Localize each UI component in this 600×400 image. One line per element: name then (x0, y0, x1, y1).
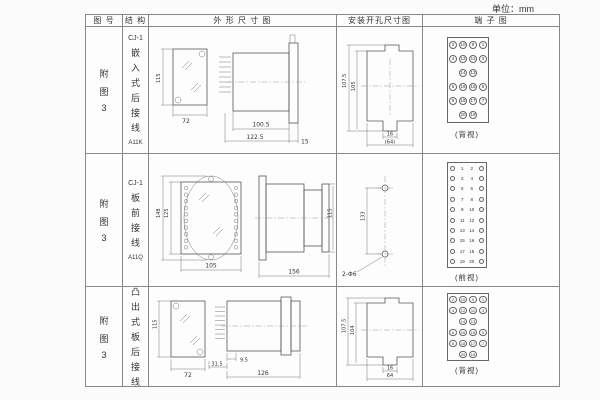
dim-label: (64) (385, 140, 395, 146)
terminal-blank (448, 349, 458, 360)
terminal-hole (479, 176, 484, 181)
row1-mount-drawing: 107.5 105 16 (64) (337, 27, 423, 154)
terminal-number: 10 (469, 207, 474, 212)
terminal-circle: 4 (448, 52, 458, 66)
terminal-number: 19 (460, 259, 465, 264)
terminal-number: 18 (459, 340, 467, 348)
terminal-hole (479, 207, 484, 212)
terminal-hole (450, 197, 455, 202)
terminal-panel-front-view: 1234567891011121314151617181920 (447, 162, 487, 268)
terminal-hole (450, 249, 455, 254)
terminal-number: 7 (479, 97, 487, 105)
terminal-circle: 7 (478, 338, 488, 349)
terminal-circle: 12 (458, 52, 468, 66)
terminal-circle: 18 (458, 338, 468, 349)
terminal-number: 3 (479, 307, 487, 315)
terminal-number: 20 (469, 259, 474, 264)
terminal-number: 17 (469, 97, 477, 105)
terminal-hole (479, 238, 484, 243)
terminal-number: 4 (470, 176, 473, 181)
terminal-circle: 18 (458, 94, 468, 108)
terminal-blank (478, 108, 488, 122)
terminal-blank (478, 66, 488, 80)
dim-label: 107.5 (342, 319, 348, 333)
terminal-number: 2 (449, 41, 457, 49)
row2-structure: CJ-1 板 前 接 线 A11Q (123, 154, 149, 287)
structure-char: 接 (131, 106, 140, 119)
terminal-number: 20 (459, 351, 467, 359)
terminal-number: 8 (449, 97, 457, 105)
terminal-number: 12 (459, 55, 467, 63)
terminal-number: 3 (461, 176, 464, 181)
structure-char: 式 (131, 76, 140, 89)
dim-label: 156 (288, 269, 300, 276)
terminal-hole (479, 197, 484, 202)
terminal-number: 19 (469, 351, 477, 359)
header-structure: 结 构 (123, 15, 149, 27)
structure-char: 嵌 (131, 46, 140, 59)
dim-label: 115 (156, 73, 162, 83)
terminal-number: 15 (469, 329, 477, 337)
fig-char: 图 (99, 332, 108, 345)
terminal-circle: 2 (448, 294, 458, 305)
header-fig-no: 图 号 (86, 15, 123, 27)
structure-code: A11Q (128, 255, 143, 261)
terminal-caption: (背视) (427, 129, 507, 140)
terminal-number: 6 (449, 329, 457, 337)
dim-label: 9.5 (240, 358, 248, 364)
terminal-circle: 8 (448, 94, 458, 108)
dim-label: 72 (184, 372, 192, 379)
header-outline-dims: 外 形 尺 寸 图 (149, 15, 337, 27)
terminal-number: 13 (469, 318, 477, 326)
terminal-hole (450, 259, 455, 264)
terminal-circle: 12 (458, 305, 468, 316)
terminal-circle: 8 (448, 338, 458, 349)
fig-char: 附 (99, 197, 108, 210)
dim-label: 125 (164, 208, 170, 218)
terminal-number: 17 (469, 340, 477, 348)
terminal-number: 12 (459, 307, 467, 315)
terminal-circle: 17 (468, 94, 478, 108)
terminal-circle: 6 (448, 327, 458, 338)
terminal-number: 2 (449, 296, 457, 304)
structure-char: 线 (131, 375, 140, 387)
terminal-circle: 15 (468, 80, 478, 94)
dim-label: 107.5 (342, 74, 348, 88)
terminal-circle: 9 (468, 38, 478, 52)
terminal-number: 1 (479, 41, 487, 49)
row3-mount-cell: 107.5 104 16 64 (337, 287, 423, 386)
terminal-blank (448, 66, 458, 80)
terminal-circle: 7 (478, 94, 488, 108)
structure-model: CJ-1 (128, 180, 143, 187)
terminal-hole (450, 218, 455, 223)
hole-spec-label: 2-Φ6 (342, 271, 357, 278)
row2-fig-no: 附 图 3 (86, 154, 123, 287)
dim-label: 115 (328, 208, 334, 218)
terminal-circle: 11 (468, 305, 478, 316)
terminal-circle: 16 (458, 80, 468, 94)
terminal-number: 11 (469, 55, 477, 63)
terminal-number: 15 (460, 238, 465, 243)
terminal-circle: 19 (468, 108, 478, 122)
terminal-circle: 15 (468, 327, 478, 338)
terminal-hole (479, 259, 484, 264)
row1-terminal-cell: 2109141211314136161558181772019 (背视) (423, 27, 559, 154)
terminal-number: 4 (449, 307, 457, 315)
terminal-number: 10 (459, 41, 467, 49)
terminal-hole (479, 166, 484, 171)
terminal-number: 12 (469, 218, 474, 223)
dim-label: 16 (387, 366, 393, 372)
dim-label: 148 (156, 208, 162, 218)
header-terminal-diagram: 端 子 图 (423, 15, 559, 27)
fig-char: 图 (99, 215, 108, 228)
dim-label: 104 (350, 325, 356, 335)
terminal-circle: 10 (458, 38, 468, 52)
terminal-number: 7 (461, 197, 464, 202)
terminal-blank (478, 349, 488, 360)
terminal-hole (479, 228, 484, 233)
terminal-circle: 14 (458, 66, 468, 80)
dim-label: 15 (301, 139, 309, 146)
row1-fig-no: 附 图 3 (86, 27, 123, 154)
terminal-number: 13 (469, 69, 477, 77)
structure-char: 出 (131, 300, 140, 313)
terminal-panel-back-view: 2109141211314136161558181772019 (447, 37, 489, 123)
dim-label: 105 (351, 81, 357, 91)
terminal-number: 4 (449, 55, 457, 63)
terminal-blank (448, 316, 458, 327)
dim-label: 122.5 (246, 134, 263, 141)
terminal-circle: 11 (468, 52, 478, 66)
structure-char: 线 (131, 236, 140, 249)
terminal-number: 8 (470, 197, 473, 202)
row2-outline-cell: 148 125 105 115 156 (149, 154, 337, 287)
dim-label: 16 (387, 132, 393, 138)
fig-char: 3 (101, 350, 106, 360)
terminal-number: 14 (459, 318, 467, 326)
terminal-hole (450, 207, 455, 212)
terminal-circle: 5 (478, 327, 488, 338)
fig-char: 图 (99, 85, 108, 98)
terminal-number: 5 (479, 329, 487, 337)
structure-char: 接 (131, 221, 140, 234)
terminal-caption: (背视) (427, 365, 507, 376)
terminal-number: 9 (469, 41, 477, 49)
dim-label: 100.5 (252, 122, 269, 129)
terminal-circle: 19 (468, 349, 478, 360)
fig-char: 3 (101, 103, 106, 113)
terminal-number: 9 (469, 296, 477, 304)
terminal-number: 2 (470, 166, 473, 171)
dim-label: 133 (361, 211, 367, 221)
dim-label: 126 (257, 370, 269, 377)
terminal-circle: 13 (468, 316, 478, 327)
terminal-circle: 6 (448, 80, 458, 94)
structure-char: 线 (131, 121, 140, 134)
terminal-circle: 20 (458, 349, 468, 360)
terminal-number: 18 (459, 97, 467, 105)
terminal-circle: 9 (468, 294, 478, 305)
terminal-circle: 4 (448, 305, 458, 316)
terminal-circle: 17 (468, 338, 478, 349)
terminal-blank (478, 316, 488, 327)
terminal-hole (450, 228, 455, 233)
structure-char: 凸 (131, 287, 140, 298)
terminal-number: 1 (461, 166, 464, 171)
structure-char: 板 (131, 330, 140, 343)
dim-label: 115 (153, 319, 159, 329)
structure-char: 后 (131, 345, 140, 358)
terminal-circle: 20 (458, 108, 468, 122)
terminal-panel-back-view: 2109141211314136161558181772019 (447, 293, 489, 361)
terminal-circle: 14 (458, 316, 468, 327)
row3-mount-drawing: 107.5 104 16 64 (337, 287, 423, 386)
structure-model: CJ-1 (128, 35, 143, 42)
terminal-hole (479, 249, 484, 254)
terminal-circle: 3 (478, 305, 488, 316)
terminal-number: 19 (469, 111, 477, 119)
terminal-number: 14 (469, 228, 474, 233)
row3-fig-no: 附 图 3 (86, 287, 123, 386)
terminal-circle: 13 (468, 66, 478, 80)
header-mount-holes: 安装开孔尺寸图 (337, 15, 423, 27)
row1-outline-drawing: 115 72 100.5 122.5 15 (149, 27, 337, 154)
terminal-number: 8 (449, 340, 457, 348)
structure-char: 前 (131, 206, 140, 219)
terminal-number: 6 (449, 83, 457, 91)
row2-mount-drawing: 133 2-Φ6 (337, 154, 423, 287)
terminal-hole (450, 238, 455, 243)
terminal-number: 16 (469, 238, 474, 243)
structure-code: A11K (128, 140, 142, 146)
terminal-number: 16 (459, 83, 467, 91)
structure-char: 板 (131, 191, 140, 204)
fig-char: 3 (101, 233, 106, 243)
terminal-hole (479, 186, 484, 191)
terminal-circle: 2 (448, 38, 458, 52)
structure-char: 后 (131, 91, 140, 104)
terminal-hole (450, 166, 455, 171)
terminal-number: 5 (479, 83, 487, 91)
terminal-circle: 16 (458, 327, 468, 338)
terminal-number: 9 (461, 207, 464, 212)
terminal-number: 15 (469, 83, 477, 91)
dimension-table: 图 号 结 构 外 形 尺 寸 图 安装开孔尺寸图 端 子 图 附 图 3 CJ… (85, 14, 560, 387)
terminal-circle: 1 (478, 38, 488, 52)
row1-outline-cell: 115 72 100.5 122.5 15 (149, 27, 337, 154)
document-page: 单位：mm 图 号 结 构 外 形 尺 寸 图 安装开孔尺寸图 端 子 图 附 … (0, 0, 600, 400)
row2-outline-drawing: 148 125 105 115 156 (149, 154, 337, 287)
structure-char: 接 (131, 360, 140, 373)
terminal-hole (450, 176, 455, 181)
terminal-number: 13 (460, 228, 465, 233)
terminal-number: 6 (470, 186, 473, 191)
row2-mount-cell: 133 2-Φ6 (337, 154, 423, 287)
terminal-number: 3 (479, 55, 487, 63)
row3-outline-cell: 115 72 9.5 31.5 126 (149, 287, 337, 386)
terminal-number: 5 (461, 186, 464, 191)
row1-structure: CJ-1 嵌 入 式 后 接 线 A11K (123, 27, 149, 154)
terminal-number: 20 (459, 111, 467, 119)
terminal-number: 1 (479, 296, 487, 304)
dim-label: 31.5 (211, 362, 222, 368)
terminal-blank (448, 108, 458, 122)
terminal-number: 17 (460, 249, 465, 254)
terminal-number: 18 (469, 249, 474, 254)
terminal-hole (479, 218, 484, 223)
row3-terminal-cell: 2109141211314136161558181772019 (背视) (423, 287, 559, 386)
terminal-number: 10 (459, 296, 467, 304)
dim-label: 105 (205, 263, 217, 270)
terminal-circle: 5 (478, 80, 488, 94)
dim-label: 64 (387, 373, 393, 379)
row2-terminal-cell: 1234567891011121314151617181920 (前视) (423, 154, 559, 287)
terminal-caption: (前视) (427, 272, 507, 283)
terminal-number: 16 (459, 329, 467, 337)
terminal-number: 11 (469, 307, 477, 315)
terminal-number: 14 (459, 69, 467, 77)
terminal-circle: 1 (478, 294, 488, 305)
structure-char: 入 (131, 61, 140, 74)
terminal-circle: 3 (478, 52, 488, 66)
fig-char: 附 (99, 67, 108, 80)
terminal-circle: 10 (458, 294, 468, 305)
row3-structure: CJ-1 凸 出 式 板 后 接 线 A11H (123, 287, 149, 386)
terminal-hole (450, 186, 455, 191)
terminal-number: 11 (460, 218, 465, 223)
structure-char: 式 (131, 315, 140, 328)
row3-outline-drawing: 115 72 9.5 31.5 126 (149, 287, 337, 386)
terminal-number: 7 (479, 340, 487, 348)
row1-mount-cell: 107.5 105 16 (64) (337, 27, 423, 154)
dim-label: 72 (182, 118, 190, 125)
fig-char: 附 (99, 314, 108, 327)
